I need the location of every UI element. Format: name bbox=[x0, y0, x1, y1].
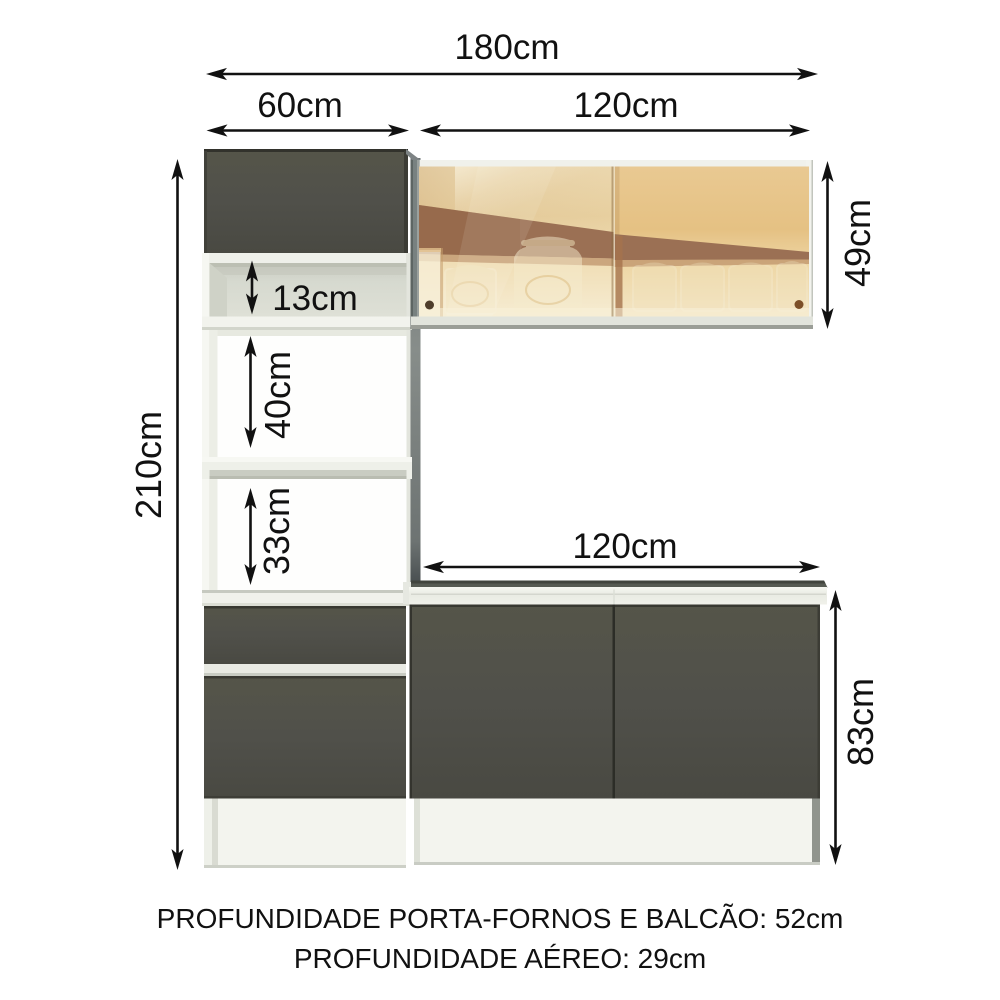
svg-text:49cm: 49cm bbox=[837, 199, 878, 287]
svg-text:180cm: 180cm bbox=[454, 28, 559, 67]
svg-text:13cm: 13cm bbox=[272, 279, 358, 318]
svg-text:83cm: 83cm bbox=[840, 678, 881, 766]
svg-text:PROFUNDIDADE AÉREO: 29cm: PROFUNDIDADE AÉREO: 29cm bbox=[294, 943, 706, 974]
svg-text:120cm: 120cm bbox=[572, 527, 677, 566]
svg-text:PROFUNDIDADE PORTA-FORNOS E BA: PROFUNDIDADE PORTA-FORNOS E BALCÃO: 52cm bbox=[157, 903, 844, 934]
svg-text:120cm: 120cm bbox=[573, 86, 678, 125]
svg-text:40cm: 40cm bbox=[257, 351, 298, 439]
svg-text:210cm: 210cm bbox=[128, 411, 169, 519]
svg-text:33cm: 33cm bbox=[256, 487, 297, 575]
svg-text:60cm: 60cm bbox=[257, 86, 343, 125]
